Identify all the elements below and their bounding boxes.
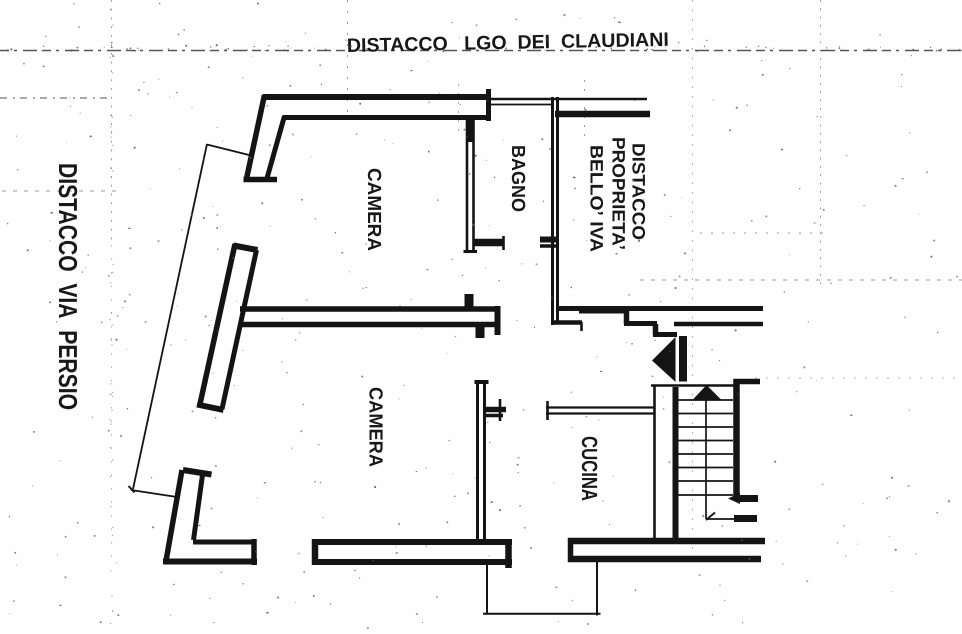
svg-text:DISTACCO: DISTACCO (629, 143, 649, 240)
svg-text:DISTACCO VIA PERSIO: DISTACCO VIA PERSIO (53, 163, 83, 410)
svg-text:CUCINA: CUCINA (577, 436, 602, 501)
svg-text:BAGNO: BAGNO (507, 145, 528, 212)
svg-text:CAMERA: CAMERA (365, 387, 386, 467)
svg-text:BELLO’ IVA: BELLO’ IVA (587, 145, 607, 252)
svg-text:CAMERA: CAMERA (363, 168, 384, 251)
svg-text:PROPRIETA’: PROPRIETA’ (609, 137, 629, 250)
